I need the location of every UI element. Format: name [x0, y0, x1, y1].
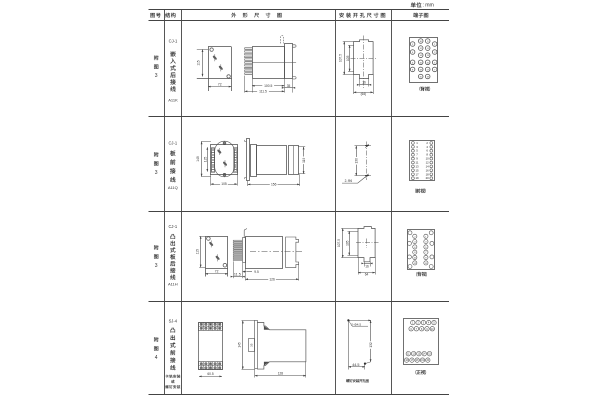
svg-text:3: 3 — [155, 263, 158, 269]
svg-text:Φ6: Φ6 — [348, 179, 353, 183]
svg-text:125: 125 — [204, 157, 208, 163]
svg-text:CJ-1: CJ-1 — [168, 224, 177, 229]
svg-text:35: 35 — [249, 343, 253, 347]
svg-text:SJ-4: SJ-4 — [169, 318, 178, 323]
svg-text:128: 128 — [278, 372, 284, 376]
svg-text:119: 119 — [302, 158, 306, 163]
svg-text:9.5: 9.5 — [254, 270, 259, 274]
svg-text:16: 16 — [365, 265, 369, 269]
svg-text:60.5: 60.5 — [207, 372, 213, 376]
svg-text:115: 115 — [197, 60, 201, 65]
svg-text:72: 72 — [218, 82, 222, 86]
svg-text:mm: mm — [425, 2, 434, 8]
svg-text:149: 149 — [196, 156, 200, 162]
svg-text:20: 20 — [426, 176, 430, 180]
svg-text:4: 4 — [155, 355, 158, 361]
svg-text:126: 126 — [269, 277, 275, 281]
svg-text:105: 105 — [346, 55, 350, 61]
svg-text:64: 64 — [365, 272, 369, 276]
svg-text:16: 16 — [362, 81, 366, 85]
svg-text:107.5: 107.5 — [337, 239, 341, 247]
svg-text:130: 130 — [354, 158, 358, 164]
svg-text:156: 156 — [271, 183, 277, 187]
svg-text:72: 72 — [215, 270, 219, 274]
svg-text:107.5: 107.5 — [338, 54, 342, 62]
svg-text:111.5: 111.5 — [259, 90, 267, 94]
svg-text:A11Q: A11Q — [168, 185, 178, 190]
svg-text:A11H: A11H — [168, 282, 178, 287]
svg-text:100.5: 100.5 — [264, 84, 272, 88]
svg-text:A11K: A11K — [168, 97, 178, 102]
svg-text:(64): (64) — [361, 92, 367, 96]
svg-text:35: 35 — [287, 84, 291, 88]
svg-text:145: 145 — [238, 342, 242, 348]
svg-text:Φ4.5: Φ4.5 — [354, 323, 361, 327]
svg-text:3: 3 — [155, 170, 158, 176]
svg-text:44.5: 44.5 — [352, 363, 359, 367]
svg-text:19: 19 — [415, 176, 419, 180]
svg-text:11.5: 11.5 — [234, 273, 241, 277]
svg-text:CJ-1: CJ-1 — [169, 38, 178, 43]
svg-text:CJ-1: CJ-1 — [168, 140, 177, 145]
svg-text:3: 3 — [155, 73, 158, 79]
svg-text:105: 105 — [221, 182, 227, 186]
svg-text:105: 105 — [346, 240, 350, 246]
svg-text::: : — [423, 2, 424, 8]
svg-text:115: 115 — [195, 249, 199, 254]
svg-text:132: 132 — [369, 342, 373, 348]
